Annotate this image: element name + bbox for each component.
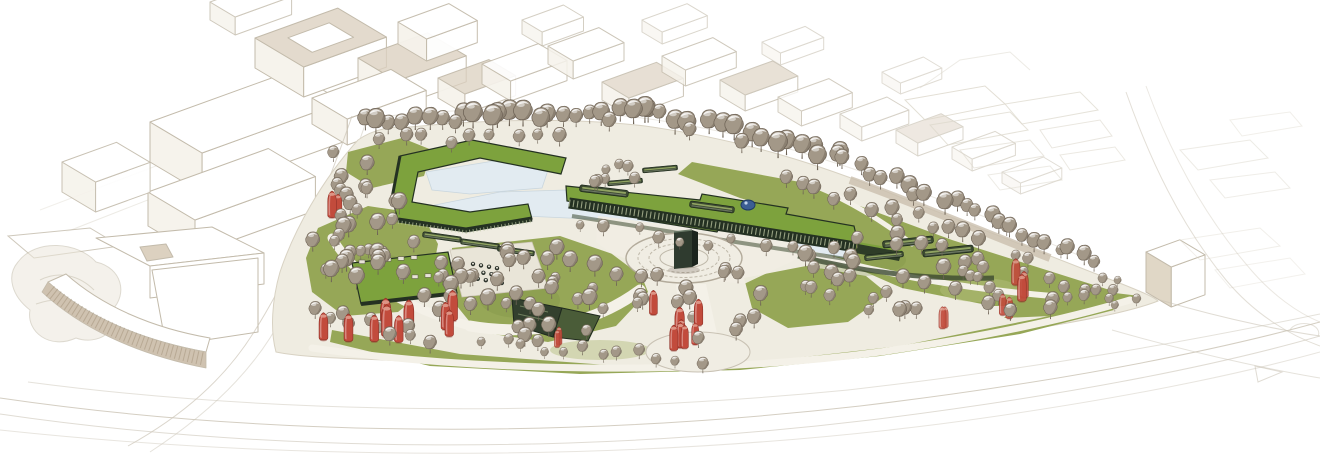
roof-lounger — [425, 274, 431, 278]
red-accent-tree — [649, 290, 657, 316]
red-accent-tree — [939, 306, 946, 329]
roof-lounger — [359, 260, 365, 264]
red-accent-tree — [554, 330, 560, 348]
red-accent-tree — [319, 313, 328, 342]
roof-lounger — [411, 256, 417, 260]
red-accent-tree — [681, 325, 689, 349]
red-accent-tree — [394, 316, 403, 344]
roof-lounger — [398, 257, 404, 261]
red-accent-tree — [370, 315, 379, 343]
monument-monolith — [674, 230, 698, 269]
red-accent-tree — [670, 325, 678, 352]
red-accent-tree — [445, 310, 454, 338]
masterplan-illustration — [0, 0, 1320, 462]
red-accent-tree — [344, 314, 353, 343]
context-building — [1146, 240, 1205, 307]
roof-lounger — [412, 275, 418, 279]
red-accent-tree — [1017, 274, 1026, 303]
masterplan-svg — [0, 0, 1320, 462]
skylight-dome — [741, 200, 755, 210]
red-accent-tree — [694, 299, 702, 327]
